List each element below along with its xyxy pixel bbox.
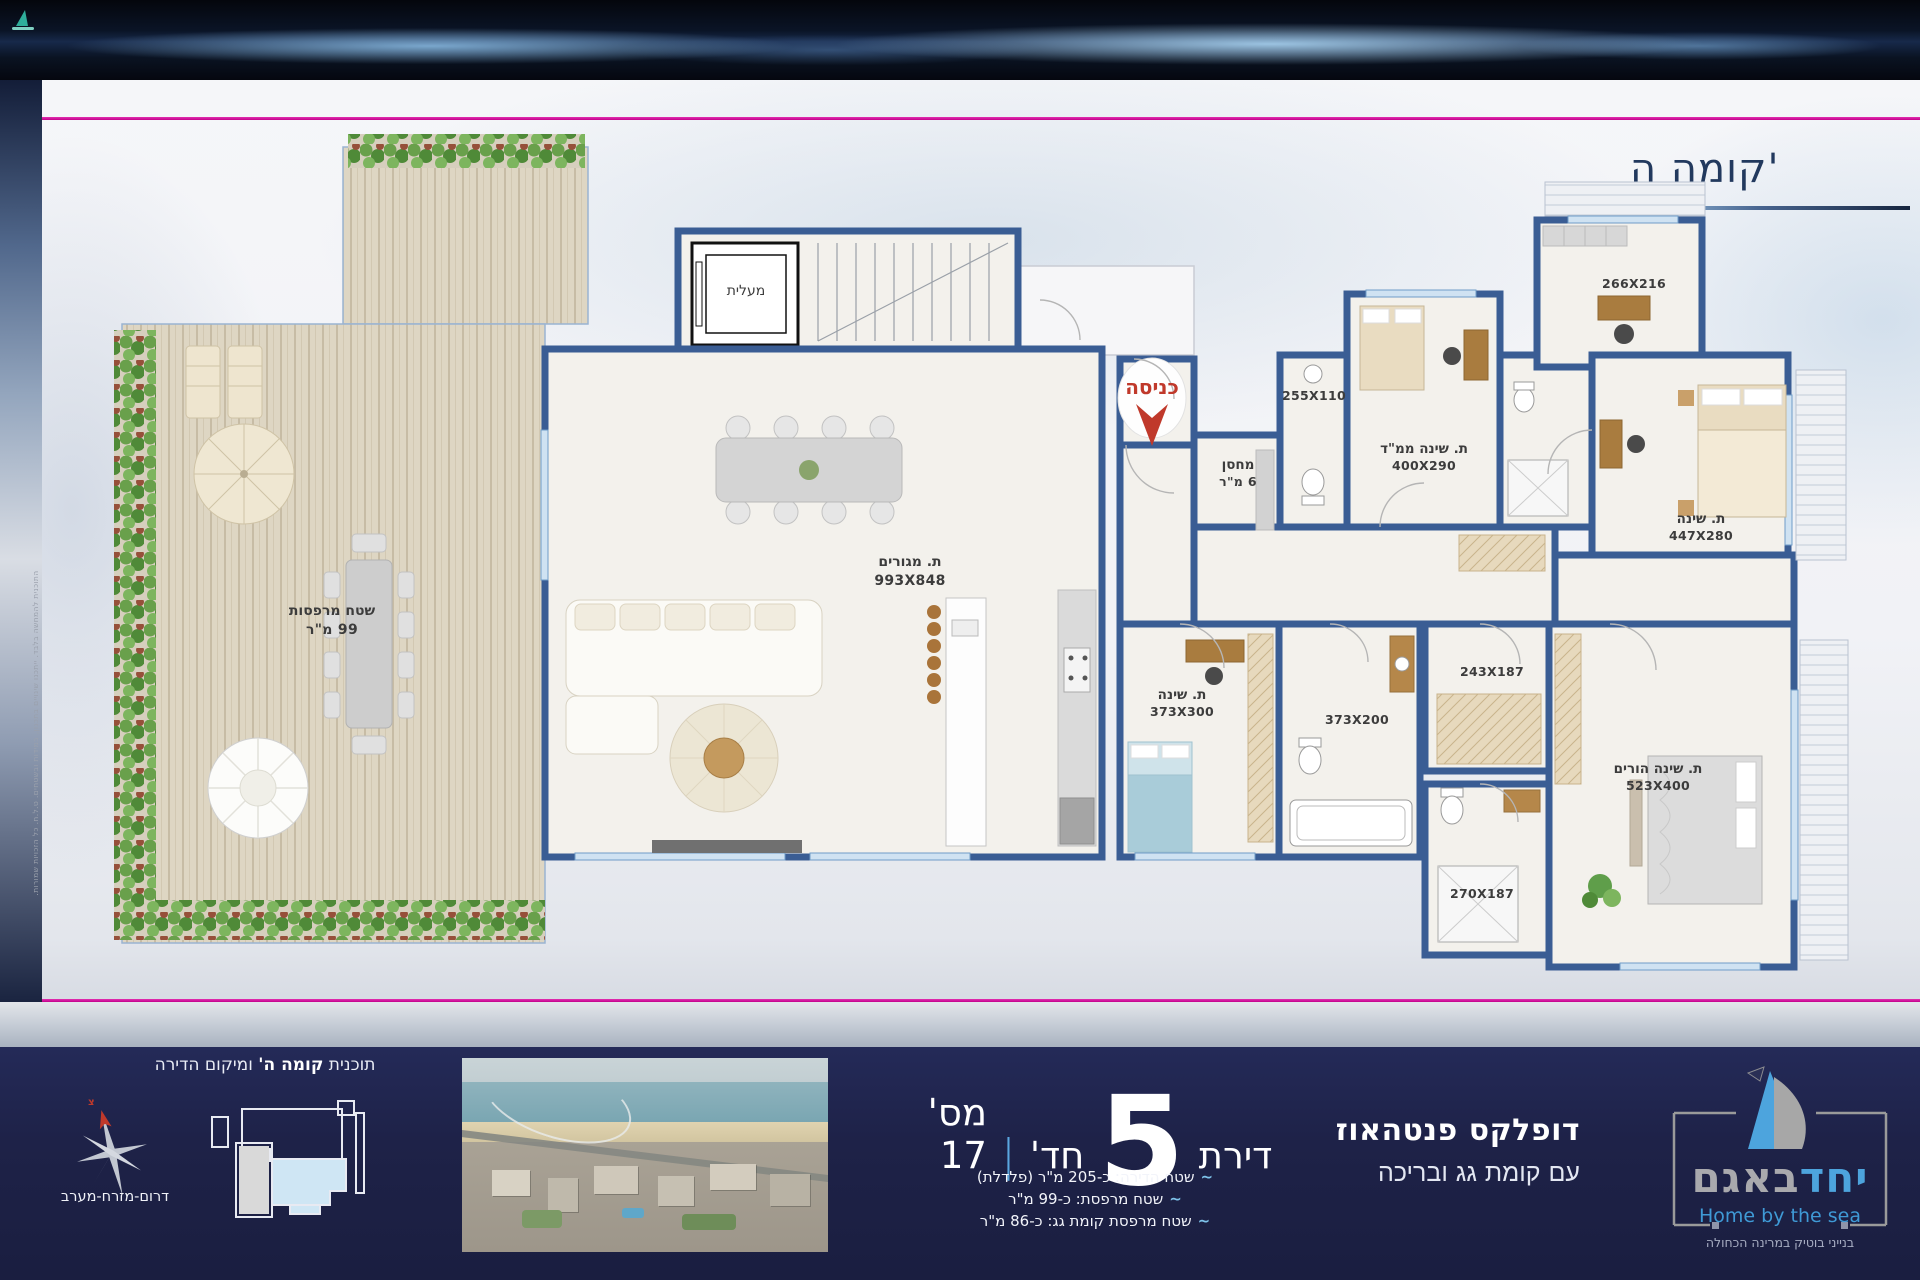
brand-subtitle-row: בנייני בוטיק במרינה הכחולה <box>1652 1235 1908 1250</box>
label-mamad: ת. שינה ממ"ד 400X290 <box>1358 440 1490 475</box>
room-top-right-dims: 266X216 <box>1588 276 1680 293</box>
parents-dims: 523X400 <box>1582 778 1734 795</box>
building-block <box>658 1176 694 1206</box>
green-patch <box>522 1210 562 1228</box>
sail-gray <box>1774 1077 1806 1149</box>
kitchen-counter <box>1058 590 1096 846</box>
mamad-dims: 400X290 <box>1358 458 1490 475</box>
compass-north-letter: צ <box>88 1097 95 1108</box>
compass-icon <box>70 1099 154 1203</box>
tilde-mark: ~ <box>1201 1168 1214 1186</box>
brand-name: יחדבאגם <box>1652 1153 1908 1202</box>
vertical-disclaimer-text: התוכנית להמחשה בלבד. ייתכנו שינויים בתכנ… <box>31 533 45 933</box>
parents-name: ת. שינה הורים <box>1582 760 1734 778</box>
building-block <box>548 1178 578 1212</box>
detail-row: ~שטח מרפסת: כ-99 מ"ר <box>930 1189 1260 1211</box>
umbrella-icon <box>194 424 294 524</box>
location-plan-title: תוכנית קומה ה' ומיקום הדירה <box>120 1055 410 1075</box>
green-patch <box>682 1214 736 1230</box>
bedroom2-dims: 447X280 <box>1650 528 1752 545</box>
mini-plan-apartment-highlight <box>272 1159 346 1205</box>
building-block <box>770 1174 810 1206</box>
label-living: ת. מגורים 993X848 <box>842 553 978 591</box>
living-dims: 993X848 <box>842 572 978 591</box>
corridor-c <box>1555 555 1794 624</box>
location-title-pre: תוכנית <box>323 1055 375 1075</box>
brand-logo: יחדבאגם Home by the sea בנייני בוטיק במר… <box>1652 1057 1908 1273</box>
footer-bar: תוכנית קומה ה' ומיקום הדירה צ <box>0 1047 1920 1280</box>
bedroom3-dims: 373X300 <box>1126 704 1238 721</box>
detail-text: שטח הדירה: כ-205 מ"ר (פלדלת) <box>977 1168 1195 1186</box>
building-block <box>492 1170 530 1196</box>
label-hall: 243X187 <box>1446 664 1538 681</box>
brand-tagline: Home by the sea <box>1652 1205 1908 1227</box>
brand-name-blue: יחד <box>1800 1153 1869 1202</box>
duplex-title: דופלקס פנטהאוז עם קומת גג ובריכה <box>1330 1113 1580 1188</box>
hall-dims: 243X187 <box>1446 664 1538 681</box>
label-bedroom2: ת. שינה 447X280 <box>1650 510 1752 545</box>
shore-photo-strip <box>0 1002 1920 1047</box>
location-title-bold: קומה ה' <box>258 1055 323 1075</box>
daybed-icon <box>208 738 308 838</box>
duplex-title-line2: עם קומת גג ובריכה <box>1330 1158 1580 1188</box>
label-terrace: שטח מרפסות 99 מ"ר <box>262 602 402 640</box>
bath-top-dims: 255X110 <box>1274 388 1354 405</box>
building-block <box>594 1166 638 1194</box>
label-entrance: כניסה <box>1106 374 1198 401</box>
label-bedroom3: ת. שינה 373X300 <box>1126 686 1238 721</box>
bath-mid-dims: 373X200 <box>1312 712 1402 729</box>
label-elevator: מעלית <box>700 282 792 301</box>
label-bath-mid: 373X200 <box>1312 712 1402 729</box>
mini-floor-plan <box>150 1083 380 1243</box>
terrace-name: שטח מרפסות <box>262 602 402 621</box>
detail-text: שטח מרפסת קומת גג: כ-86 מ"ר <box>980 1212 1192 1230</box>
storage-name: מחסן <box>1198 456 1278 474</box>
aerial-photo <box>462 1058 828 1252</box>
living-name: ת. מגורים <box>842 553 978 572</box>
duplex-title-line1: דופלקס פנטהאוז <box>1330 1113 1580 1148</box>
mini-plan-terrace <box>239 1146 269 1214</box>
label-bath-top: 255X110 <box>1274 388 1354 405</box>
orientation-label: דרום-מזרח-מערב <box>40 1189 190 1205</box>
label-bath-parents: 270X187 <box>1436 886 1528 903</box>
tv-console <box>652 840 802 853</box>
apartment-details: ~שטח הדירה: כ-205 מ"ר (פלדלת) ~שטח מרפסת… <box>930 1167 1260 1232</box>
label-parents: ת. שינה הורים 523X400 <box>1582 760 1734 795</box>
bath-parents-dims: 270X187 <box>1436 886 1528 903</box>
terrace-dims: 99 מ"ר <box>262 621 402 640</box>
bedroom3-name: ת. שינה <box>1126 686 1238 704</box>
detail-row: ~שטח מרפסת קומת גג: כ-86 מ"ר <box>930 1211 1260 1233</box>
detail-text: שטח מרפסת: כ-99 מ"ר <box>1008 1190 1163 1208</box>
tilde-mark: ~ <box>1169 1190 1182 1208</box>
tilde-mark: ~ <box>1198 1212 1211 1230</box>
location-title-post: ומיקום הדירה <box>155 1055 259 1075</box>
brand-name-gray: באגם <box>1691 1153 1799 1202</box>
brand-subtitle: בנייני בוטיק במרינה הכחולה <box>1706 1235 1854 1250</box>
pool-patch <box>622 1208 644 1218</box>
bedroom2-name: ת. שינה <box>1650 510 1752 528</box>
detail-row: ~שטח הדירה: כ-205 מ"ר (פלדלת) <box>930 1167 1260 1189</box>
brochure-page: קומה ה' <box>0 0 1920 1280</box>
terrace-group <box>114 134 588 943</box>
rug <box>670 704 778 812</box>
building-block <box>710 1164 756 1190</box>
label-room-top-right: 266X216 <box>1588 276 1680 293</box>
mamad-name: ת. שינה ממ"ד <box>1358 440 1490 458</box>
corridor-a <box>1120 445 1194 625</box>
storage-dims: 6 מ"ר <box>1198 474 1278 491</box>
label-storage: מחסן 6 מ"ר <box>1198 456 1278 491</box>
